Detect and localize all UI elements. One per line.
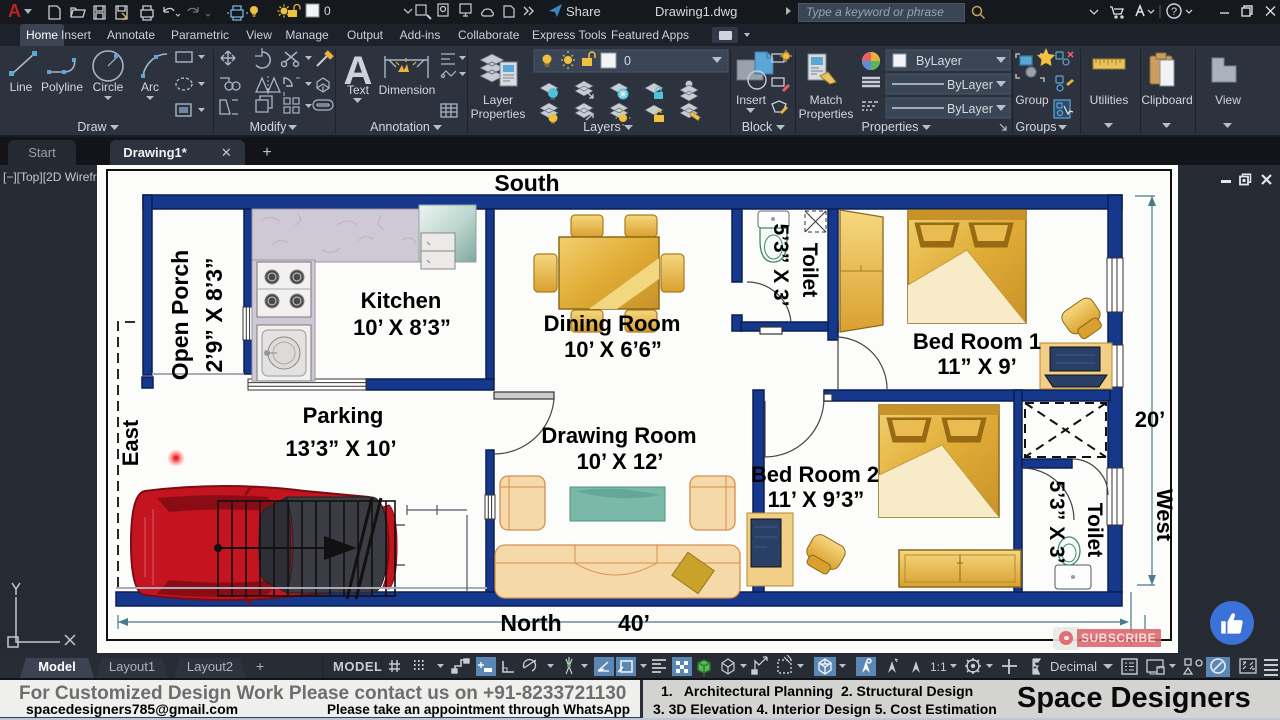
svg-text:0: 0 (624, 54, 631, 68)
svg-text:11” X 9’: 11” X 9’ (937, 354, 1017, 379)
svg-text:Model: Model (38, 659, 76, 674)
svg-text:10’ X 8’3”: 10’ X 8’3” (353, 315, 451, 340)
svg-text:Layer: Layer (483, 93, 513, 107)
svg-text:Groups: Groups (1016, 120, 1057, 134)
svg-text:Decimal: Decimal (1050, 659, 1097, 674)
svg-text:Match: Match (810, 93, 843, 107)
svg-text:Bed Room 1: Bed Room 1 (913, 329, 1041, 354)
svg-text:South: South (494, 170, 559, 196)
svg-text:Utilities: Utilities (1090, 93, 1129, 107)
svg-text:Layout1: Layout1 (109, 659, 155, 674)
svg-text:North: North (500, 610, 561, 636)
svg-text:Polyline: Polyline (41, 80, 83, 94)
svg-text:ByLayer: ByLayer (947, 78, 993, 92)
svg-text:Properties: Properties (471, 107, 526, 121)
svg-text:2’9” X 8’3”: 2’9” X 8’3” (201, 257, 227, 372)
svg-text:MODEL: MODEL (333, 659, 382, 674)
svg-text:Line: Line (10, 80, 33, 94)
svg-text:Drawing Room: Drawing Room (541, 423, 696, 448)
svg-text:Dimension: Dimension (379, 83, 436, 97)
svg-text:5’3” X 3’: 5’3” X 3’ (769, 224, 792, 307)
svg-text:View: View (1215, 93, 1241, 107)
svg-text:Draw: Draw (77, 120, 107, 134)
svg-text:ByLayer: ByLayer (947, 102, 993, 116)
svg-text:Text: Text (347, 83, 370, 97)
svg-text:Bed Room 2: Bed Room 2 (751, 462, 879, 487)
svg-text:Arc: Arc (141, 80, 159, 94)
svg-text:Group: Group (1015, 93, 1049, 107)
svg-text:Kitchen: Kitchen (361, 288, 442, 313)
svg-text:Dining Room: Dining Room (544, 311, 681, 336)
svg-text:Layers: Layers (583, 120, 621, 134)
svg-text:+: + (256, 658, 264, 674)
svg-text:ByLayer: ByLayer (916, 54, 962, 68)
svg-text:Annotation: Annotation (370, 120, 430, 134)
svg-text:Properties: Properties (862, 120, 919, 134)
svg-text:Open Porch: Open Porch (167, 250, 193, 380)
svg-text:Circle: Circle (93, 80, 124, 94)
svg-text:0: 0 (324, 4, 331, 18)
svg-text:Share: Share (566, 4, 601, 19)
svg-text:Layout2: Layout2 (187, 659, 233, 674)
svg-text:Properties: Properties (799, 107, 854, 121)
svg-text:Parking: Parking (303, 403, 384, 428)
svg-text:5’3” X 3’: 5’3” X 3’ (1045, 481, 1068, 564)
svg-text:10’ X 6’6”: 10’ X 6’6” (564, 337, 662, 362)
svg-text:Modify: Modify (250, 120, 288, 134)
svg-text:10’ X 12’: 10’ X 12’ (577, 449, 664, 474)
svg-text:1:1: 1:1 (930, 660, 947, 674)
svg-text:?: ? (1171, 6, 1177, 18)
svg-text:Clipboard: Clipboard (1141, 93, 1192, 107)
svg-text:11’ X 9’3”: 11’ X 9’3” (768, 487, 865, 512)
svg-text:West: West (1152, 489, 1177, 542)
svg-text:Toilet: Toilet (798, 243, 821, 297)
svg-text:20’: 20’ (1135, 407, 1166, 432)
svg-text:13’3” X 10’: 13’3” X 10’ (285, 436, 396, 461)
svg-text:40’: 40’ (618, 610, 650, 636)
svg-text:Toilet: Toilet (1083, 503, 1106, 557)
svg-text:East: East (118, 419, 143, 466)
svg-text:Insert: Insert (736, 93, 767, 107)
svg-text:Block: Block (742, 120, 773, 134)
